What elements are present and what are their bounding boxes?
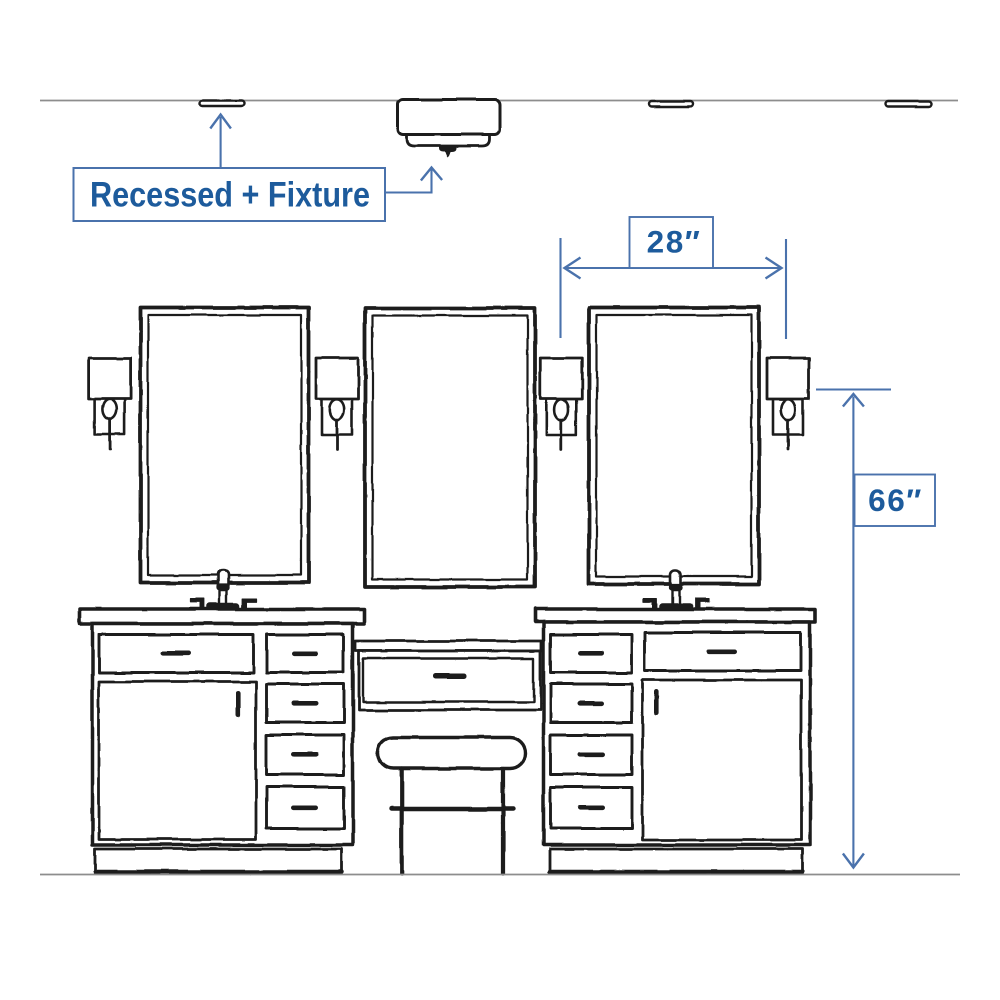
svg-text:28″: 28″ <box>647 224 702 260</box>
svg-text:66″: 66″ <box>868 482 923 518</box>
svg-text:Recessed + Fixture: Recessed + Fixture <box>90 176 370 215</box>
